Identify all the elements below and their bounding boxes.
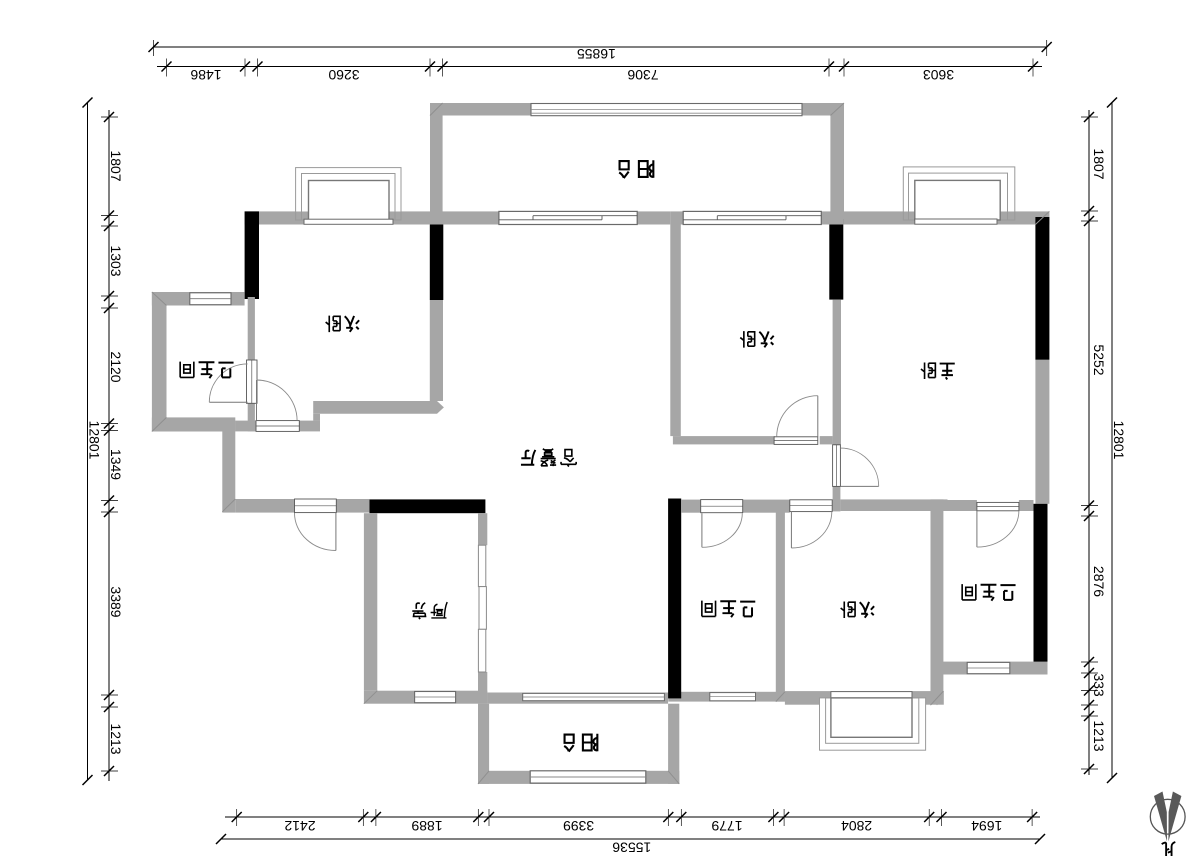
svg-text:1303: 1303 [108,245,124,276]
svg-text:1694: 1694 [971,818,1002,834]
svg-text:12801: 12801 [1111,421,1127,460]
svg-text:16855: 16855 [577,46,616,62]
svg-text:2412: 2412 [284,818,315,834]
svg-text:333: 333 [1091,673,1107,697]
svg-text:2120: 2120 [108,351,124,382]
svg-text:2804: 2804 [841,818,872,834]
svg-text:1213: 1213 [1091,720,1107,751]
svg-text:3260: 3260 [328,67,359,83]
svg-text:5252: 5252 [1091,344,1107,375]
svg-text:7306: 7306 [627,67,658,83]
svg-text:1807: 1807 [1091,148,1107,179]
svg-text:1486: 1486 [190,67,221,83]
svg-text:1213: 1213 [108,723,124,754]
svg-text:2876: 2876 [1091,566,1107,597]
svg-text:3399: 3399 [563,818,594,834]
svg-text:1349: 1349 [108,449,124,480]
svg-text:1889: 1889 [411,818,442,834]
svg-text:1779: 1779 [711,818,742,834]
svg-text:3603: 3603 [923,67,954,83]
svg-text:12801: 12801 [87,421,103,460]
svg-text:3389: 3389 [108,586,124,617]
svg-text:15536: 15536 [612,839,651,855]
svg-text:1807: 1807 [108,150,124,181]
